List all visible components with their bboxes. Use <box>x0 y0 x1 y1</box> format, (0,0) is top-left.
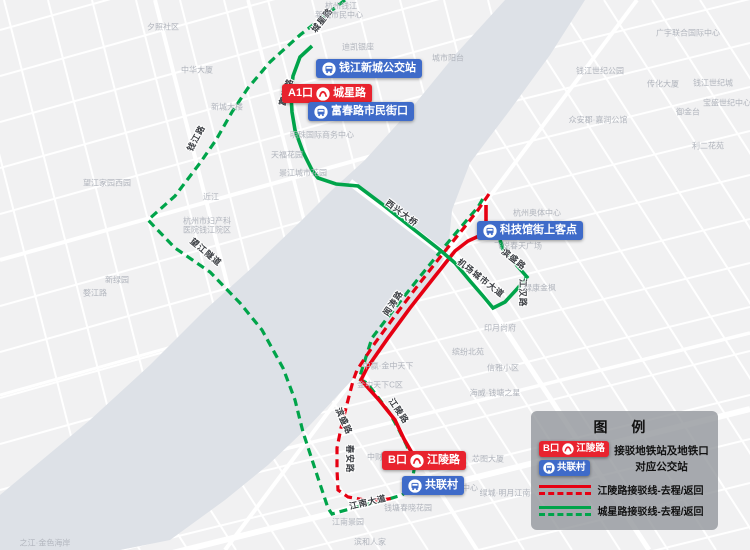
place-label: 天福花园 <box>271 150 303 161</box>
place-label: 印月尚府 <box>484 323 516 334</box>
bus-icon <box>543 462 555 474</box>
place-label: 中华大厦 <box>181 65 213 76</box>
place-label: 之江·金色海岸 <box>20 538 71 549</box>
station-qianjiang-xincheng-bus-stop[interactable]: 钱江新城公交站 <box>316 59 422 78</box>
legend-bus-label: 共联村 <box>557 460 586 476</box>
legend-chengxing-line-sample <box>539 506 591 516</box>
bus-icon <box>483 224 497 238</box>
bus-icon <box>408 479 422 493</box>
place-label: 新城大楼 <box>211 102 243 113</box>
station-exit-a1-chengxing-road[interactable]: A1口 城星路 <box>282 84 372 103</box>
station-label: 江陵路 <box>427 451 460 470</box>
place-label: 江南景园 <box>332 517 364 528</box>
legend-metro-pill: B口 江陵路 <box>539 441 609 457</box>
route-jiangling-outbound-solid <box>361 205 486 464</box>
red-solid-line <box>539 485 591 488</box>
station-label: 钱江新城公交站 <box>339 59 416 78</box>
place-label: 众安郡·嘉润公馆 <box>569 115 628 126</box>
place-label: 宝盛世纪中心 <box>703 98 750 109</box>
place-label: 金中天下C区 <box>357 380 403 391</box>
legend-title: 图 例 <box>539 417 710 437</box>
road-label: 春安路 <box>344 445 356 474</box>
legend: 图 例 B口 江陵路 共联村 接驳地铁站及地铁口 <box>531 411 718 530</box>
place-label: 钱塘春晓花园 <box>384 503 432 514</box>
station-gonglian-village[interactable]: 共联村 <box>402 476 464 495</box>
legend-metro-label: 江陵路 <box>576 441 605 457</box>
place-label: 望江家园西园 <box>83 178 131 189</box>
bus-icon <box>322 62 336 76</box>
station-exit-b-jiangling-road[interactable]: B口 江陵路 <box>382 451 466 470</box>
place-label: 近江 <box>203 192 219 203</box>
legend-bus-pill: 共联村 <box>539 460 590 476</box>
place-label: 芯图大厦 <box>472 454 504 465</box>
place-label: 婺江路 <box>83 288 107 299</box>
place-label: 御金台 <box>676 107 700 118</box>
bus-icon <box>314 105 328 119</box>
place-label: 钱江世纪公园 <box>576 66 624 77</box>
place-label: 滨和人家 <box>354 537 386 548</box>
place-label: 缤纷北苑 <box>452 347 484 358</box>
legend-note: 接驳地铁站及地铁口 对应公交站 <box>613 443 710 475</box>
exit-label: B口 <box>388 451 407 470</box>
legend-note-line1: 接驳地铁站及地铁口 <box>613 443 710 459</box>
place-label: 医院钱江院区 <box>183 225 231 236</box>
station-label: 科技馆街上客点 <box>500 221 577 240</box>
legend-chengxing-line-label: 城星路接驳线-去程/返回 <box>591 503 710 518</box>
station-label: 富春路市民街口 <box>331 102 408 121</box>
station-label: 共联村 <box>425 476 458 495</box>
place-label: 信雅小区 <box>487 363 519 374</box>
metro-icon <box>562 443 574 455</box>
place-label: 广宇联合国际中心 <box>656 28 720 39</box>
place-label: 景江城市花园 <box>279 168 327 179</box>
green-dashed-line <box>539 513 591 516</box>
place-label: 绿城·明月江南 <box>480 488 531 499</box>
metro-icon <box>316 87 330 101</box>
green-solid-line <box>539 506 591 509</box>
legend-jiangling-line-sample <box>539 485 591 495</box>
place-label: 利二花苑 <box>692 141 724 152</box>
red-dashed-line <box>539 492 591 495</box>
legend-jiangling-line-label: 江陵路接驳线-去程/返回 <box>591 482 710 497</box>
place-label: 明珠国际商务中心 <box>290 130 354 141</box>
place-label: 飞悦春天广场 <box>494 241 542 252</box>
station-fuchun-road-shimin-street[interactable]: 富春路市民街口 <box>308 102 414 121</box>
place-label: 新绿园 <box>105 275 129 286</box>
place-label: 新城市民中心 <box>315 10 363 21</box>
legend-note-line2: 对应公交站 <box>613 459 710 475</box>
place-label: 迪凯银座 <box>342 42 374 53</box>
place-label: 海威·钱塘之星 <box>470 388 521 399</box>
shuttle-route-map: 城星路富春路钱江路望江隧道西兴大桥闻涛路机场城市大道滨盛路江汉路江陵路滨盛路春安… <box>0 0 750 550</box>
place-label: 夕照社区 <box>147 22 179 33</box>
place-label: 杭州奥体中心 <box>513 208 561 219</box>
place-label: 中赢·金中天下 <box>363 361 414 372</box>
exit-label: A1口 <box>288 84 313 103</box>
legend-exit-label: B口 <box>543 441 559 457</box>
place-label: 绿康金枫 <box>524 283 556 294</box>
place-label: 传化大厦 <box>647 79 679 90</box>
place-label: 钱江世纪城 <box>693 78 733 89</box>
metro-icon <box>410 454 424 468</box>
place-label: 城市阳台 <box>432 53 464 64</box>
station-keji-guan-street-pickup[interactable]: 科技馆街上客点 <box>477 221 583 240</box>
station-label: 城星路 <box>333 84 366 103</box>
